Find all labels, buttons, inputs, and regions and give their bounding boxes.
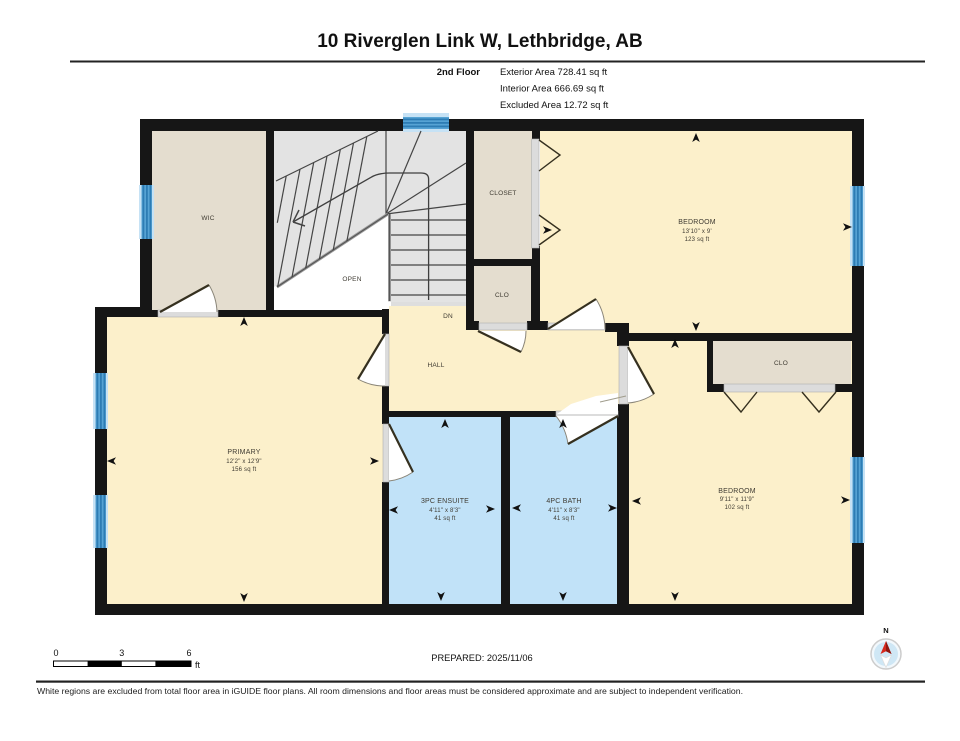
svg-text:Excluded Area 12.72 sq ft: Excluded Area 12.72 sq ft	[500, 100, 609, 111]
svg-text:6: 6	[186, 648, 191, 658]
svg-text:41 sq ft: 41 sq ft	[434, 516, 455, 522]
svg-text:3PC ENSUITE: 3PC ENSUITE	[421, 498, 469, 505]
svg-text:4'11" x 8'3": 4'11" x 8'3"	[429, 508, 461, 514]
svg-text:102 sq ft: 102 sq ft	[725, 505, 750, 511]
svg-text:PREPARED: 2025/11/06: PREPARED: 2025/11/06	[431, 653, 532, 663]
svg-text:PRIMARY: PRIMARY	[227, 449, 260, 456]
svg-text:10 Riverglen Link W, Lethbridg: 10 Riverglen Link W, Lethbridge, AB	[317, 31, 643, 52]
svg-text:BEDROOM: BEDROOM	[678, 219, 716, 226]
svg-text:123 sq ft: 123 sq ft	[685, 237, 710, 243]
svg-text:12'2" x 12'9": 12'2" x 12'9"	[226, 459, 262, 465]
svg-text:CLO: CLO	[774, 360, 788, 367]
svg-text:ft: ft	[195, 660, 201, 670]
svg-text:BEDROOM: BEDROOM	[718, 488, 756, 495]
svg-text:Exterior Area 728.41 sq ft: Exterior Area 728.41 sq ft	[500, 67, 608, 78]
svg-text:3: 3	[119, 648, 124, 658]
svg-text:HALL: HALL	[427, 362, 444, 369]
svg-text:2nd Floor: 2nd Floor	[437, 67, 481, 78]
svg-text:9'11" x 11'9": 9'11" x 11'9"	[720, 497, 755, 503]
svg-text:CLOSET: CLOSET	[489, 190, 516, 197]
svg-text:0: 0	[53, 648, 58, 658]
svg-text:White regions are excluded fro: White regions are excluded from total fl…	[37, 686, 743, 696]
svg-text:41 sq ft: 41 sq ft	[553, 516, 574, 522]
svg-text:4'11" x 8'3": 4'11" x 8'3"	[548, 508, 580, 514]
svg-text:WIC: WIC	[201, 215, 214, 222]
svg-text:4PC BATH: 4PC BATH	[546, 498, 581, 505]
svg-text:DN: DN	[443, 313, 453, 320]
svg-text:CLO: CLO	[495, 292, 509, 299]
svg-text:156 sq ft: 156 sq ft	[232, 467, 257, 473]
svg-text:OPEN: OPEN	[342, 276, 361, 283]
svg-text:N: N	[883, 626, 888, 635]
svg-text:Interior Area 666.69 sq ft: Interior Area 666.69 sq ft	[500, 84, 604, 95]
svg-text:13'10" x 9': 13'10" x 9'	[682, 229, 712, 235]
